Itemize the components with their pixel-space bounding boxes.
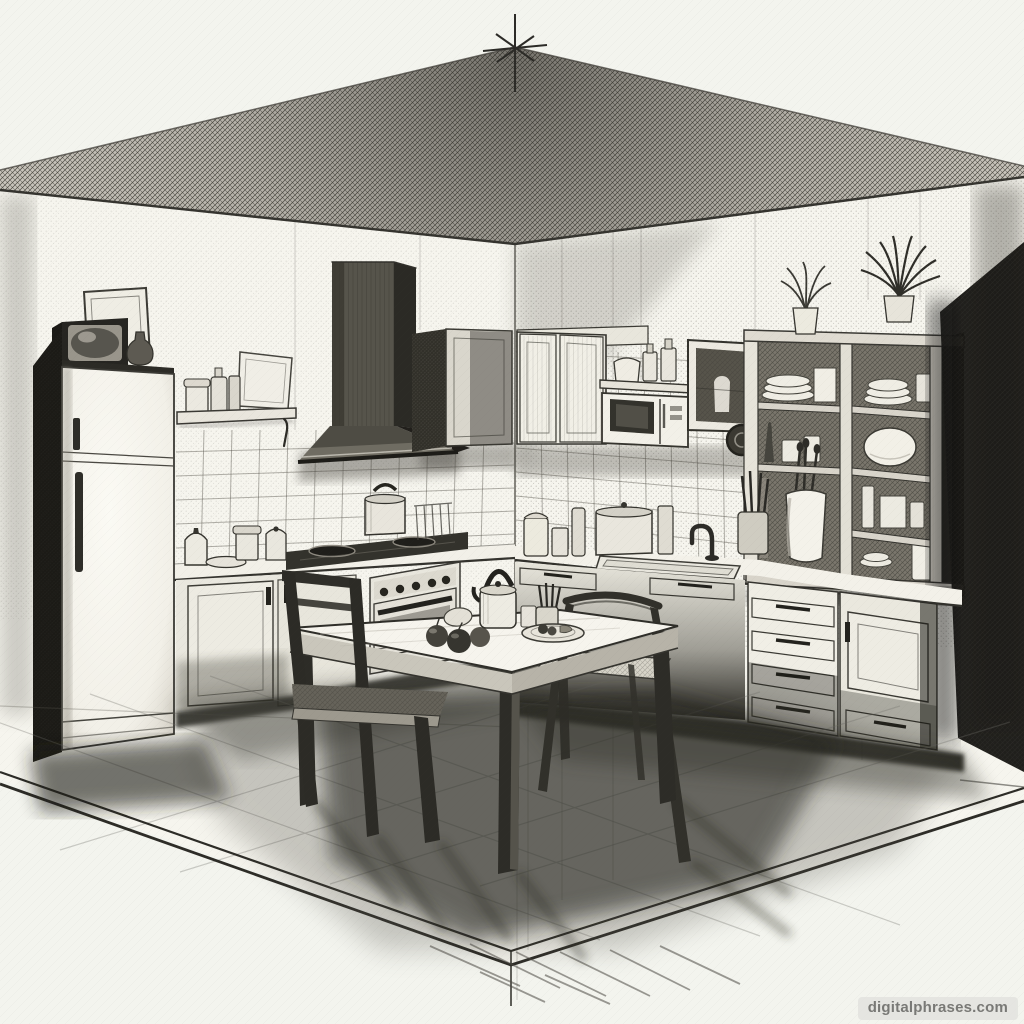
watermark-text: digitalphrases.com: [868, 999, 1008, 1016]
paper-grain: [0, 0, 1024, 1024]
kitchen-sketch: digitalphrases.com: [0, 0, 1024, 1024]
watermark: digitalphrases.com: [858, 997, 1018, 1020]
sketch-canvas: [0, 0, 1024, 1024]
